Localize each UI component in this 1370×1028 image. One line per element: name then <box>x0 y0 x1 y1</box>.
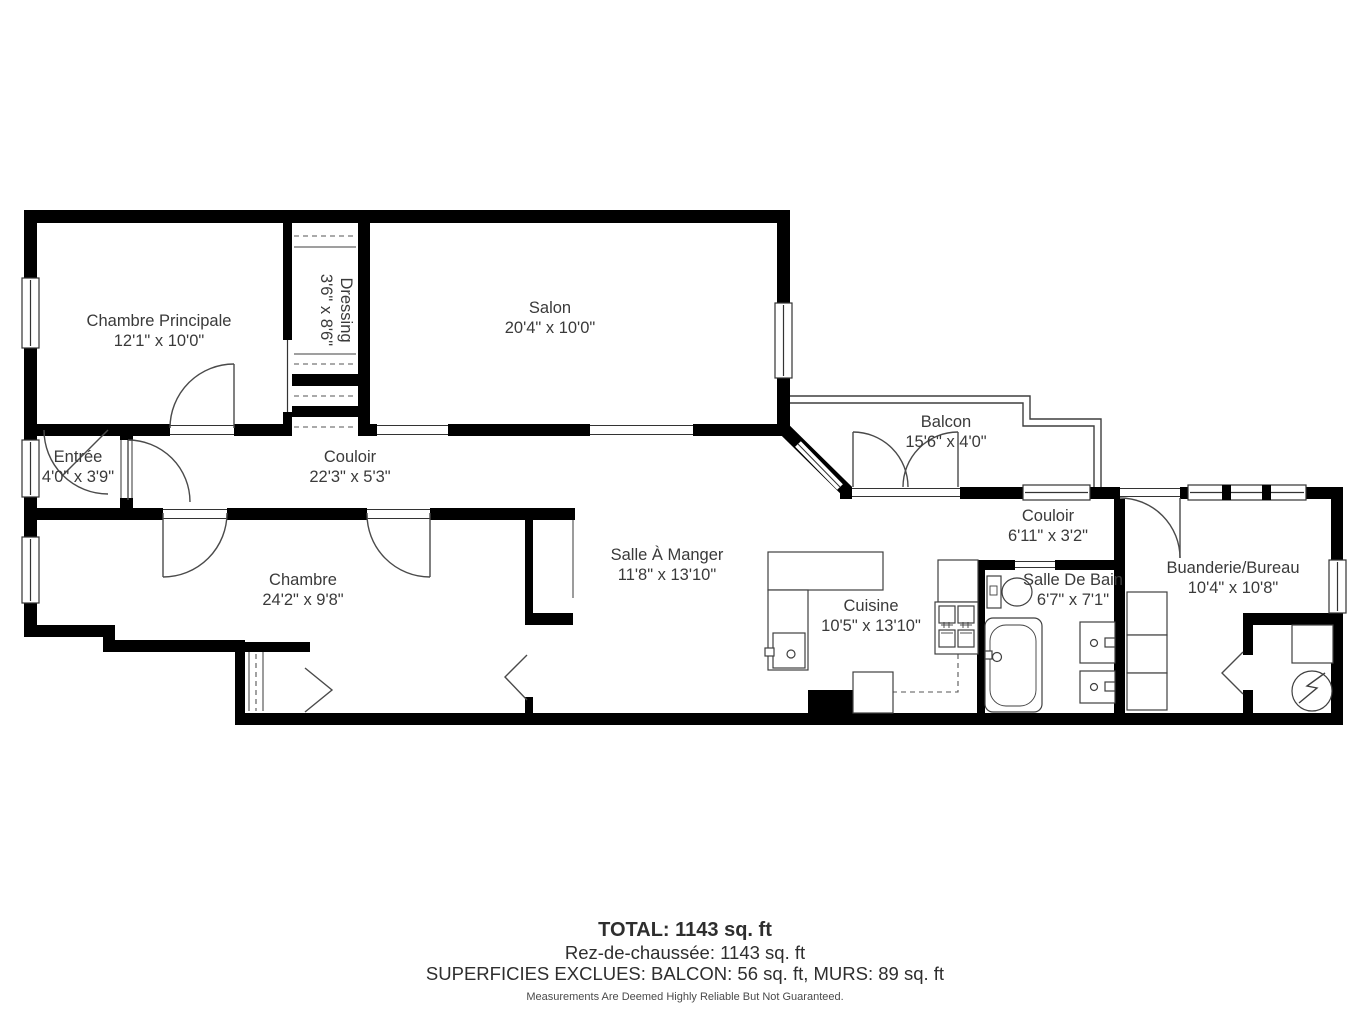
room-dims: 15'6" x 4'0" <box>905 432 986 452</box>
laundry-fixtures <box>1127 592 1333 711</box>
floor-plan-drawing <box>0 0 1370 1028</box>
room-name: Buanderie/Bureau <box>1166 558 1299 578</box>
stove-icon <box>935 602 978 654</box>
room-name: Salon <box>505 298 596 318</box>
room-dims: 22'3" x 5'3" <box>309 467 390 487</box>
room-name: Salle De Bain <box>1023 570 1123 590</box>
room-label-dressing: Dressing 3'6" x 8'6" <box>316 274 356 346</box>
room-dims: 6'11" x 3'2" <box>1008 526 1088 546</box>
room-name: Balcon <box>905 412 986 432</box>
room-name: Entrée <box>42 447 114 467</box>
diagonal-wall <box>784 429 849 493</box>
excluded-area-text: SUPERFICIES EXCLUES: BALCON: 56 sq. ft, … <box>0 963 1370 984</box>
room-dims: 12'1" x 10'0" <box>87 331 232 351</box>
room-dims: 10'4" x 10'8" <box>1166 578 1299 598</box>
room-dims: 11'8" x 13'10" <box>611 565 724 585</box>
room-label-salon: Salon 20'4" x 10'0" <box>505 298 596 338</box>
room-label-couloir: Couloir 22'3" x 5'3" <box>309 447 390 487</box>
room-label-salle-de-bain: Salle De Bain 6'7" x 7'1" <box>1023 570 1123 610</box>
disclaimer-text: Measurements Are Deemed Highly Reliable … <box>0 991 1370 1004</box>
room-label-balcon: Balcon 15'6" x 4'0" <box>905 412 986 452</box>
room-name: Dressing <box>336 274 356 346</box>
room-label-entree: Entrée 4'0" x 3'9" <box>42 447 114 487</box>
sink-icon <box>1080 622 1115 703</box>
area-summary: TOTAL: 1143 sq. ft Rez-de-chaussée: 1143… <box>0 919 1370 1004</box>
room-label-chambre: Chambre 24'2" x 9'8" <box>262 570 343 610</box>
floor-plan-page: Chambre Principale 12'1" x 10'0" Dressin… <box>0 0 1370 1028</box>
room-dims: 3'6" x 8'6" <box>316 274 336 346</box>
room-name: Couloir <box>309 447 390 467</box>
room-dims: 20'4" x 10'0" <box>505 318 596 338</box>
room-dims: 24'2" x 9'8" <box>262 590 343 610</box>
room-label-salle-a-manger: Salle À Manger 11'8" x 13'10" <box>611 545 724 585</box>
room-name: Salle À Manger <box>611 545 724 565</box>
room-name: Couloir <box>1008 506 1088 526</box>
room-name: Chambre Principale <box>87 311 232 331</box>
room-label-buanderie-bureau: Buanderie/Bureau 10'4" x 10'8" <box>1166 558 1299 598</box>
room-label-couloir-2: Couloir 6'11" x 3'2" <box>1008 506 1088 546</box>
room-dims: 6'7" x 7'1" <box>1023 590 1123 610</box>
room-name: Cuisine <box>821 596 921 616</box>
room-name: Chambre <box>262 570 343 590</box>
bathtub-icon <box>985 618 1042 712</box>
floor-area-text: Rez-de-chaussée: 1143 sq. ft <box>0 942 1370 963</box>
room-label-chambre-principale: Chambre Principale 12'1" x 10'0" <box>87 311 232 351</box>
total-area-text: TOTAL: 1143 sq. ft <box>0 919 1370 942</box>
washer-icon <box>1292 671 1332 711</box>
room-label-cuisine: Cuisine 10'5" x 13'10" <box>821 596 921 636</box>
room-dims: 10'5" x 13'10" <box>821 616 921 636</box>
room-dims: 4'0" x 3'9" <box>42 467 114 487</box>
